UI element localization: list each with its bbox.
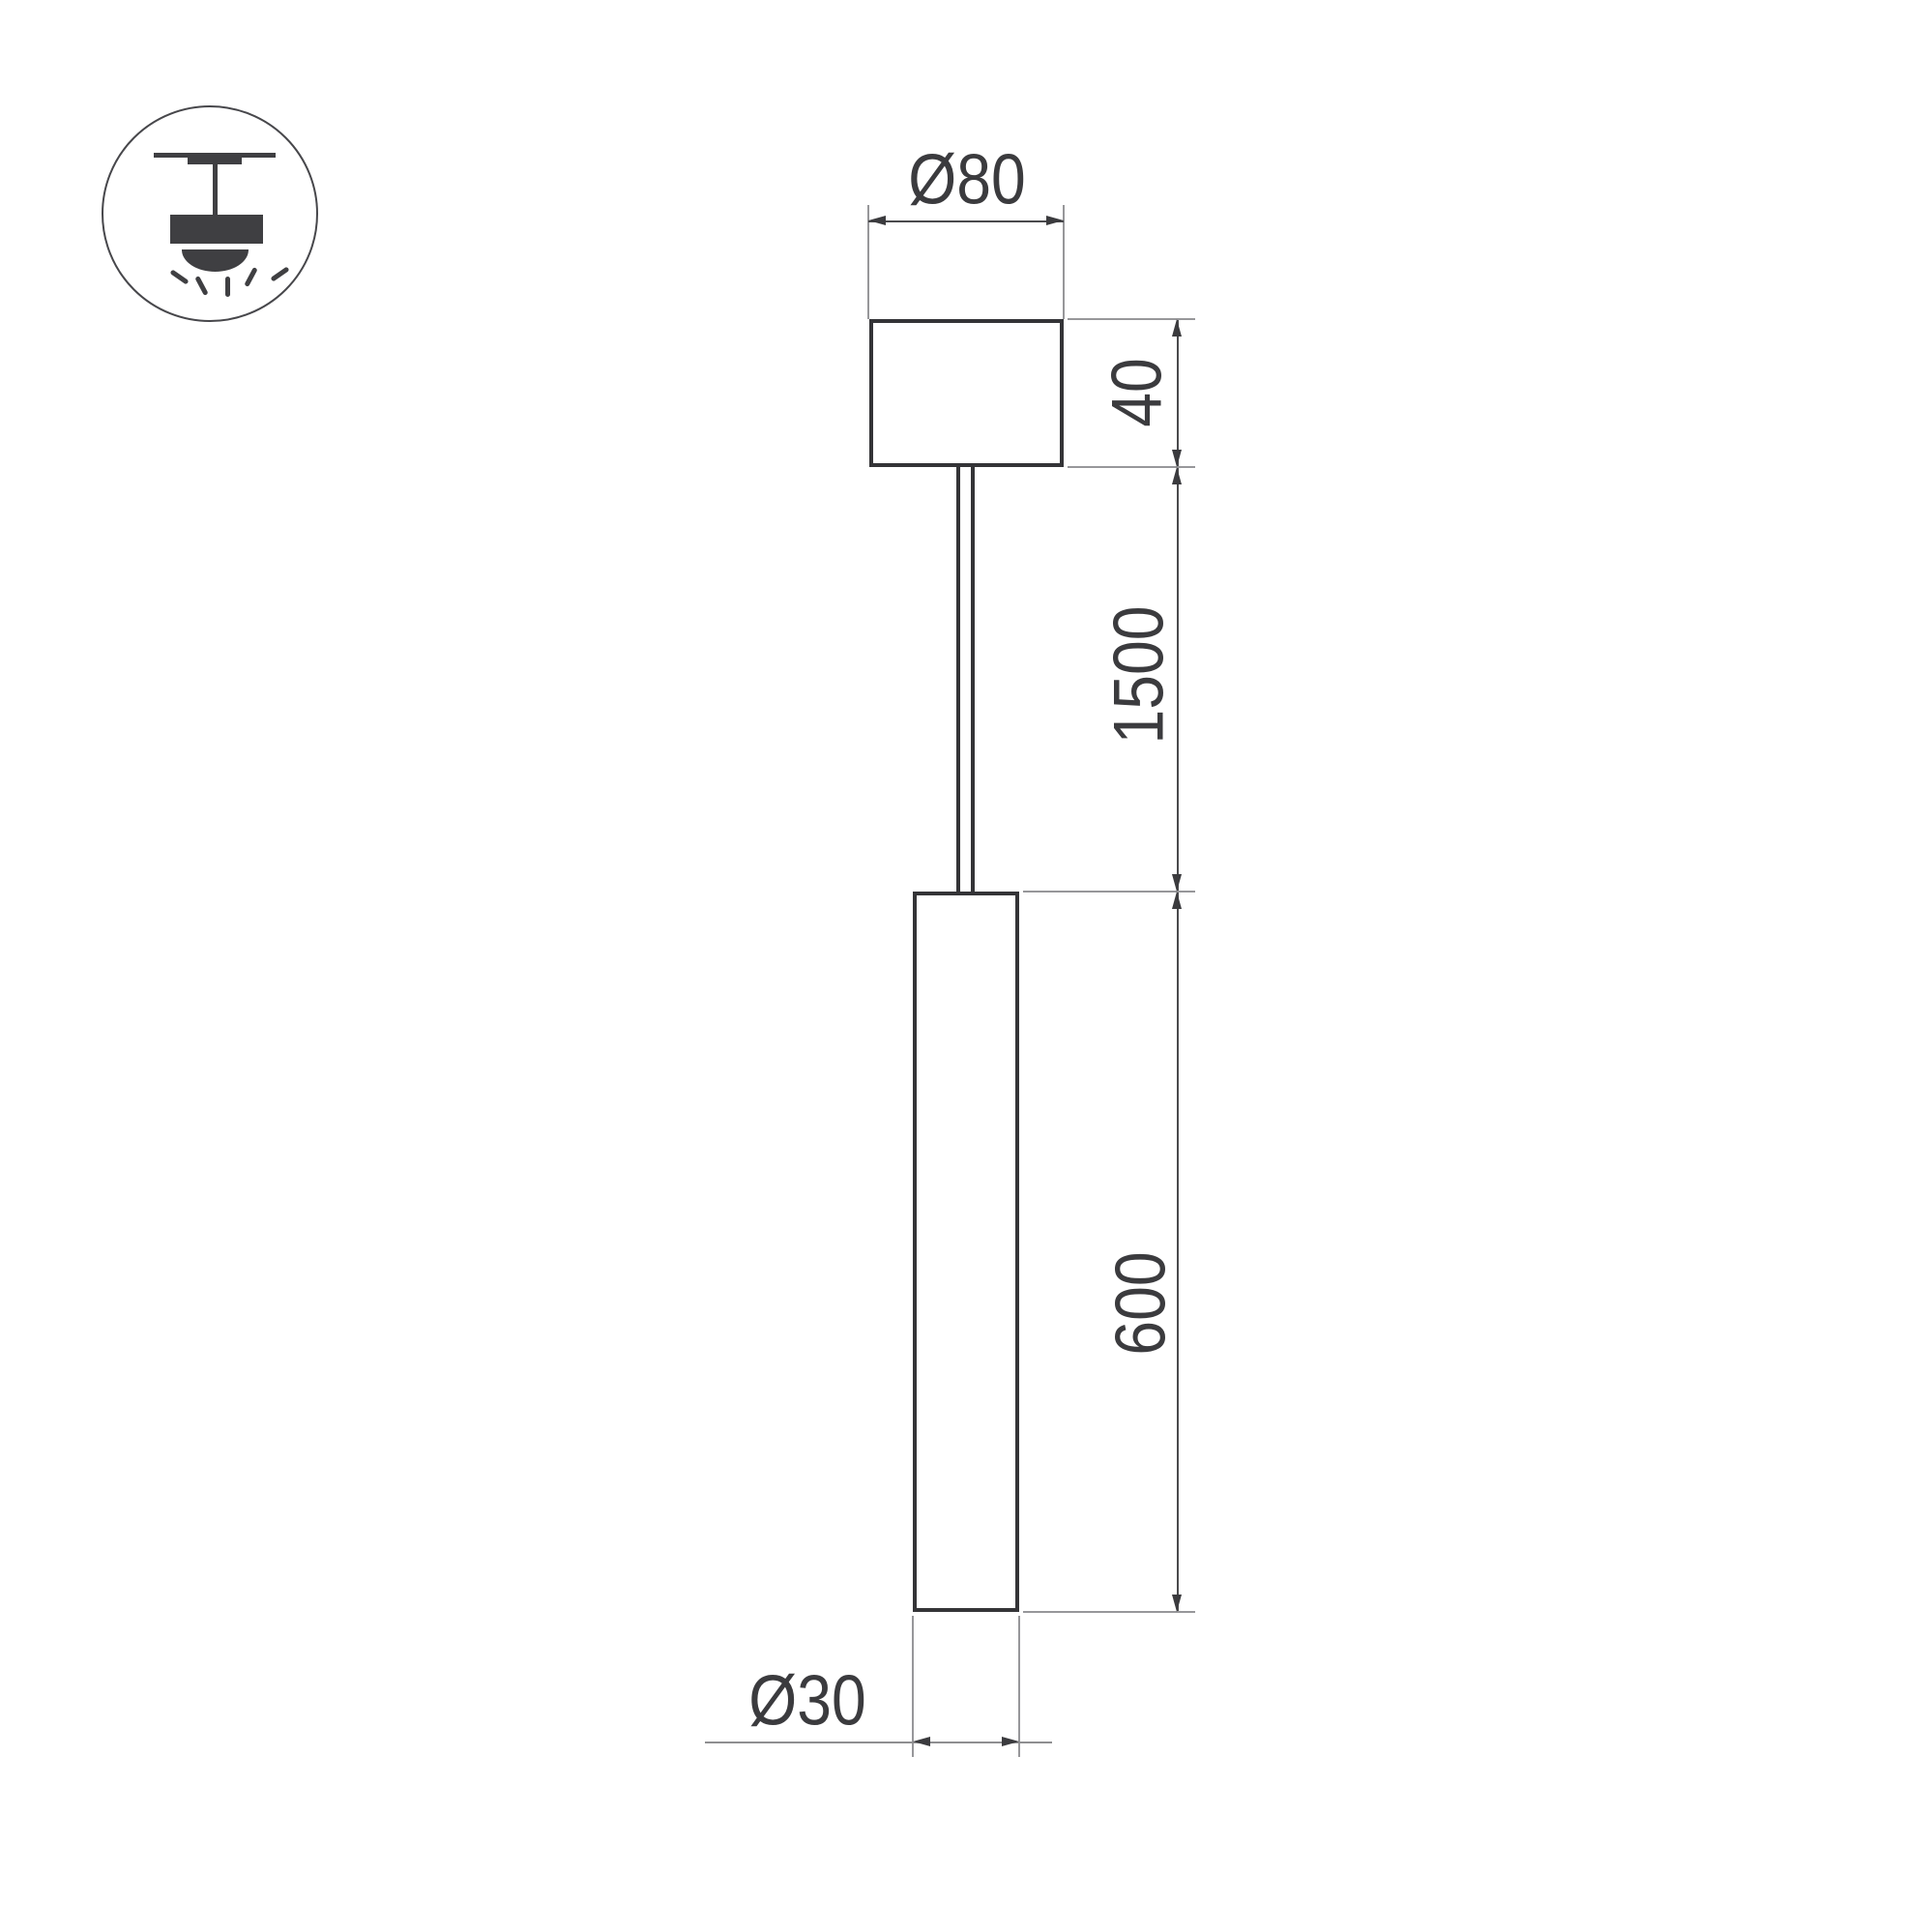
dim-label-suspension-length: 1500 (1104, 606, 1175, 745)
lamp-tube-outline (913, 892, 1019, 1612)
arrowhead-icon (1046, 216, 1064, 225)
technical-drawing-canvas: Ø80 40 1500 600 Ø30 (0, 0, 1932, 1932)
canopy-outline (869, 319, 1064, 467)
light-ray-icon (270, 266, 289, 281)
light-ray-icon (194, 276, 208, 296)
dim-label-canopy-height: 40 (1102, 358, 1173, 426)
arrowhead-icon (1002, 1737, 1019, 1746)
dim-label-tube-length: 600 (1106, 1251, 1177, 1355)
extension-line (1023, 1611, 1195, 1613)
arrowhead-icon (868, 216, 886, 225)
suspension-wire-outline (956, 467, 975, 892)
pendant-light-icon (102, 105, 318, 322)
light-dome-icon (182, 249, 249, 272)
dim-label-canopy-diameter: Ø80 (908, 145, 1025, 216)
arrowhead-icon (913, 1737, 930, 1746)
arrowhead-icon (1172, 467, 1182, 484)
light-ray-icon (169, 269, 189, 284)
light-ray-icon (244, 267, 257, 287)
dimension-line-vertical-chain (1177, 319, 1179, 1612)
dim-label-tube-diameter: Ø30 (748, 1666, 865, 1737)
arrowhead-icon (1172, 319, 1182, 337)
light-ray-icon (225, 277, 230, 297)
dimension-line-canopy-diameter (868, 220, 1064, 222)
arrowhead-icon (1172, 450, 1182, 467)
arrowhead-icon (1172, 892, 1182, 909)
dimension-line-tube-diameter (705, 1742, 1052, 1743)
arrowhead-icon (1172, 874, 1182, 892)
arrowhead-icon (1172, 1595, 1182, 1612)
suspension-stem-icon (213, 162, 218, 217)
lamp-body-icon (170, 215, 263, 244)
extension-line (1023, 891, 1195, 893)
